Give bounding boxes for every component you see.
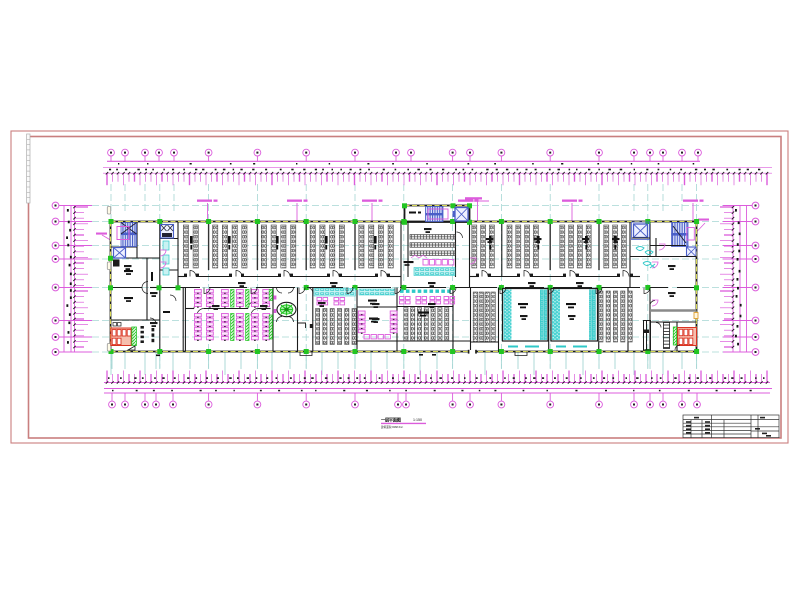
svg-text:1:150: 1:150 (413, 418, 422, 422)
svg-text:一层平面图: 一层平面图 (381, 416, 402, 423)
svg-text:建筑面积:9368.6m²: 建筑面积:9368.6m² (381, 425, 403, 429)
